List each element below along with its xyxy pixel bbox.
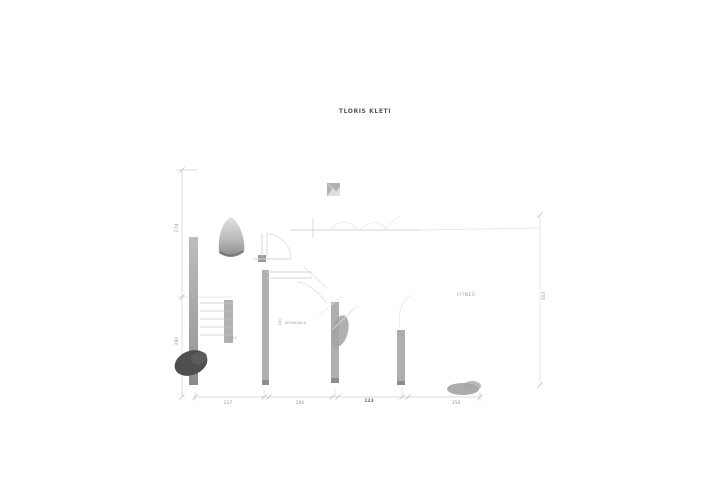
dimension-right: 503 [538,213,548,388]
dim-label-right: 503 [541,292,547,301]
room-label-fitnes: FITNES [457,292,475,298]
wall-right [397,330,405,385]
dim-label-bottom-2: 260 [296,400,305,406]
shrub-blob-2 [463,381,481,391]
stair-shading-cone [219,217,245,257]
stairs-label: 16x17 [225,335,237,340]
drawing-title: TLORIS KLETI [339,108,391,115]
door-arcs [253,215,540,329]
room-label-kopalnica: KOPALNICA [285,320,307,325]
wall-foot [262,380,269,385]
dark-blob [171,346,212,381]
wall-mid-left [262,270,269,385]
dim-label-bottom-3: 123 [364,398,374,404]
dimension-bottom: 217 260 123 358 [193,381,483,406]
dim-label-left-bottom: 280 [174,337,180,346]
dim-label-bottom-4: 358 [452,400,461,406]
wall-foot [331,378,339,383]
dim-label-bottom-1: 217 [224,400,233,406]
image-placeholder-icon [327,183,340,196]
wall-foot [397,381,405,385]
floor-plan-drawing: TLORIS KLETI 274 280 [0,0,726,485]
floor-plan-page: TLORIS KLETI 274 280 [0,0,726,485]
kopalnica-width-label: 160 [277,318,282,326]
dim-label-left-top: 274 [174,224,180,233]
